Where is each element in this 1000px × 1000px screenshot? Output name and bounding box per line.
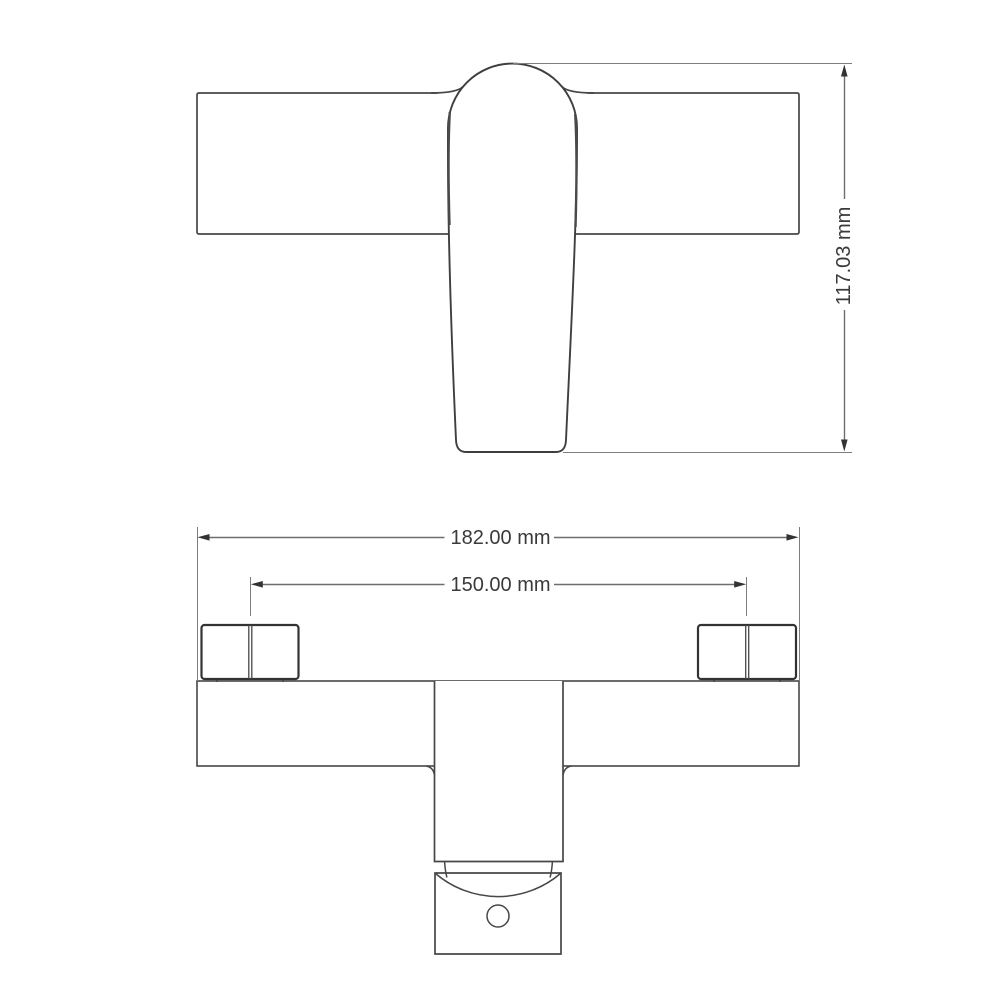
svg-text:150.00 mm: 150.00 mm: [450, 574, 550, 596]
svg-text:117.03 mm: 117.03 mm: [833, 207, 855, 306]
svg-text:182.00 mm: 182.00 mm: [450, 527, 550, 549]
